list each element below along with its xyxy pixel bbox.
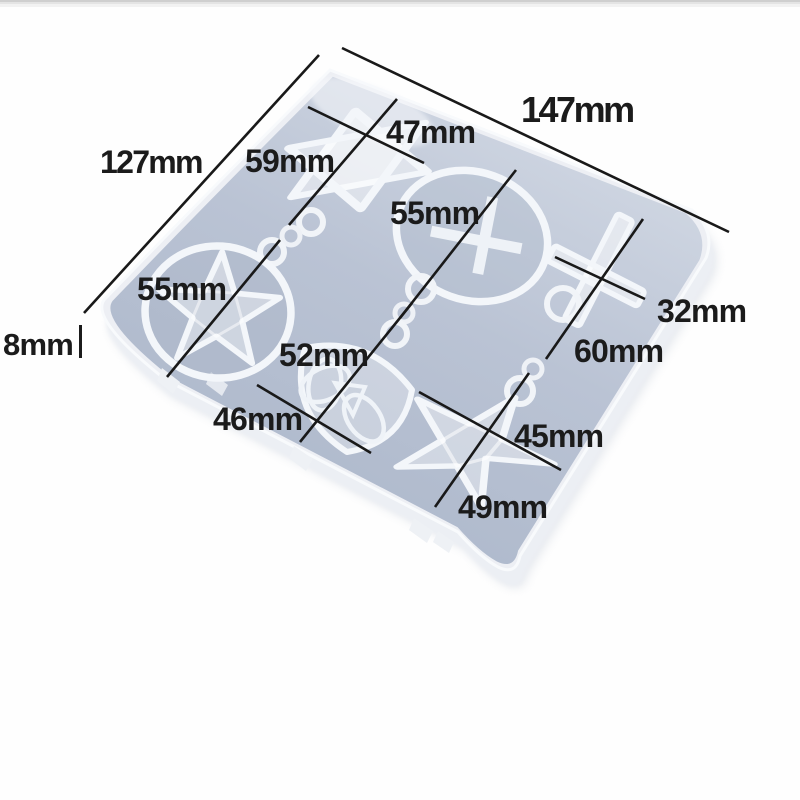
svg-text:49mm: 49mm — [458, 489, 547, 525]
svg-text:32mm: 32mm — [657, 293, 746, 329]
svg-text:60mm: 60mm — [574, 333, 663, 369]
svg-text:55mm: 55mm — [390, 195, 479, 231]
svg-text:52mm: 52mm — [279, 337, 368, 373]
svg-text:46mm: 46mm — [213, 401, 302, 437]
svg-text:127mm: 127mm — [100, 144, 202, 180]
svg-text:45mm: 45mm — [514, 418, 603, 454]
svg-text:59mm: 59mm — [245, 143, 334, 179]
svg-text:47mm: 47mm — [386, 114, 475, 150]
svg-text:8mm: 8mm — [3, 327, 73, 362]
svg-text:147mm: 147mm — [521, 89, 633, 130]
svg-text:55mm: 55mm — [137, 271, 226, 307]
